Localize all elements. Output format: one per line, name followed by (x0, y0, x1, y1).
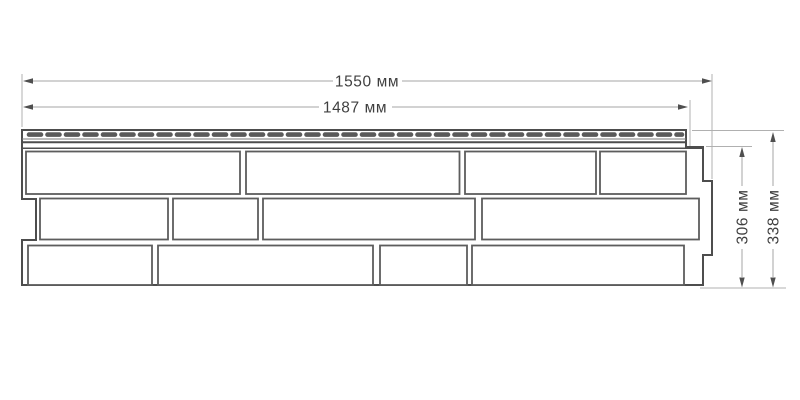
dimension-label-width-nominal: 1487 мм (323, 100, 387, 117)
brick (173, 199, 258, 240)
brick (600, 152, 686, 195)
drawing-canvas: 1550 мм 1487 мм 306 мм 338 мм (0, 0, 800, 400)
brick (26, 152, 240, 195)
brick (246, 152, 460, 195)
brick-row-1 (26, 152, 686, 195)
brick (482, 199, 699, 240)
arrowhead-right-icon (678, 104, 688, 109)
arrowhead-left-icon (23, 78, 33, 83)
arrowhead-up-icon (770, 132, 775, 142)
dimension-width-nominal: 1487 мм (23, 100, 688, 117)
brick (380, 246, 467, 286)
panel (22, 130, 712, 285)
brick-row-2 (40, 199, 699, 240)
brick (472, 246, 684, 286)
arrowhead-right-icon (702, 78, 712, 83)
dimension-height-nominal: 306 мм (735, 147, 752, 288)
dimension-label-height-total: 338 мм (766, 189, 783, 244)
dimension-width-total: 1550 мм (23, 74, 712, 91)
arrowhead-up-icon (739, 147, 744, 157)
dimension-label-width-total: 1550 мм (335, 74, 399, 91)
brick (263, 199, 475, 240)
arrowhead-down-icon (739, 278, 744, 288)
brick (28, 246, 152, 286)
panel-dimension-drawing: 1550 мм 1487 мм 306 мм 338 мм (0, 0, 800, 400)
brick (465, 152, 596, 195)
brick (40, 199, 168, 240)
brick (158, 246, 373, 286)
arrowhead-down-icon (770, 278, 775, 288)
arrowhead-left-icon (23, 104, 33, 109)
dimension-height-total: 338 мм (766, 132, 783, 288)
brick-row-3 (28, 246, 684, 286)
dimension-label-height-nominal: 306 мм (735, 189, 752, 244)
